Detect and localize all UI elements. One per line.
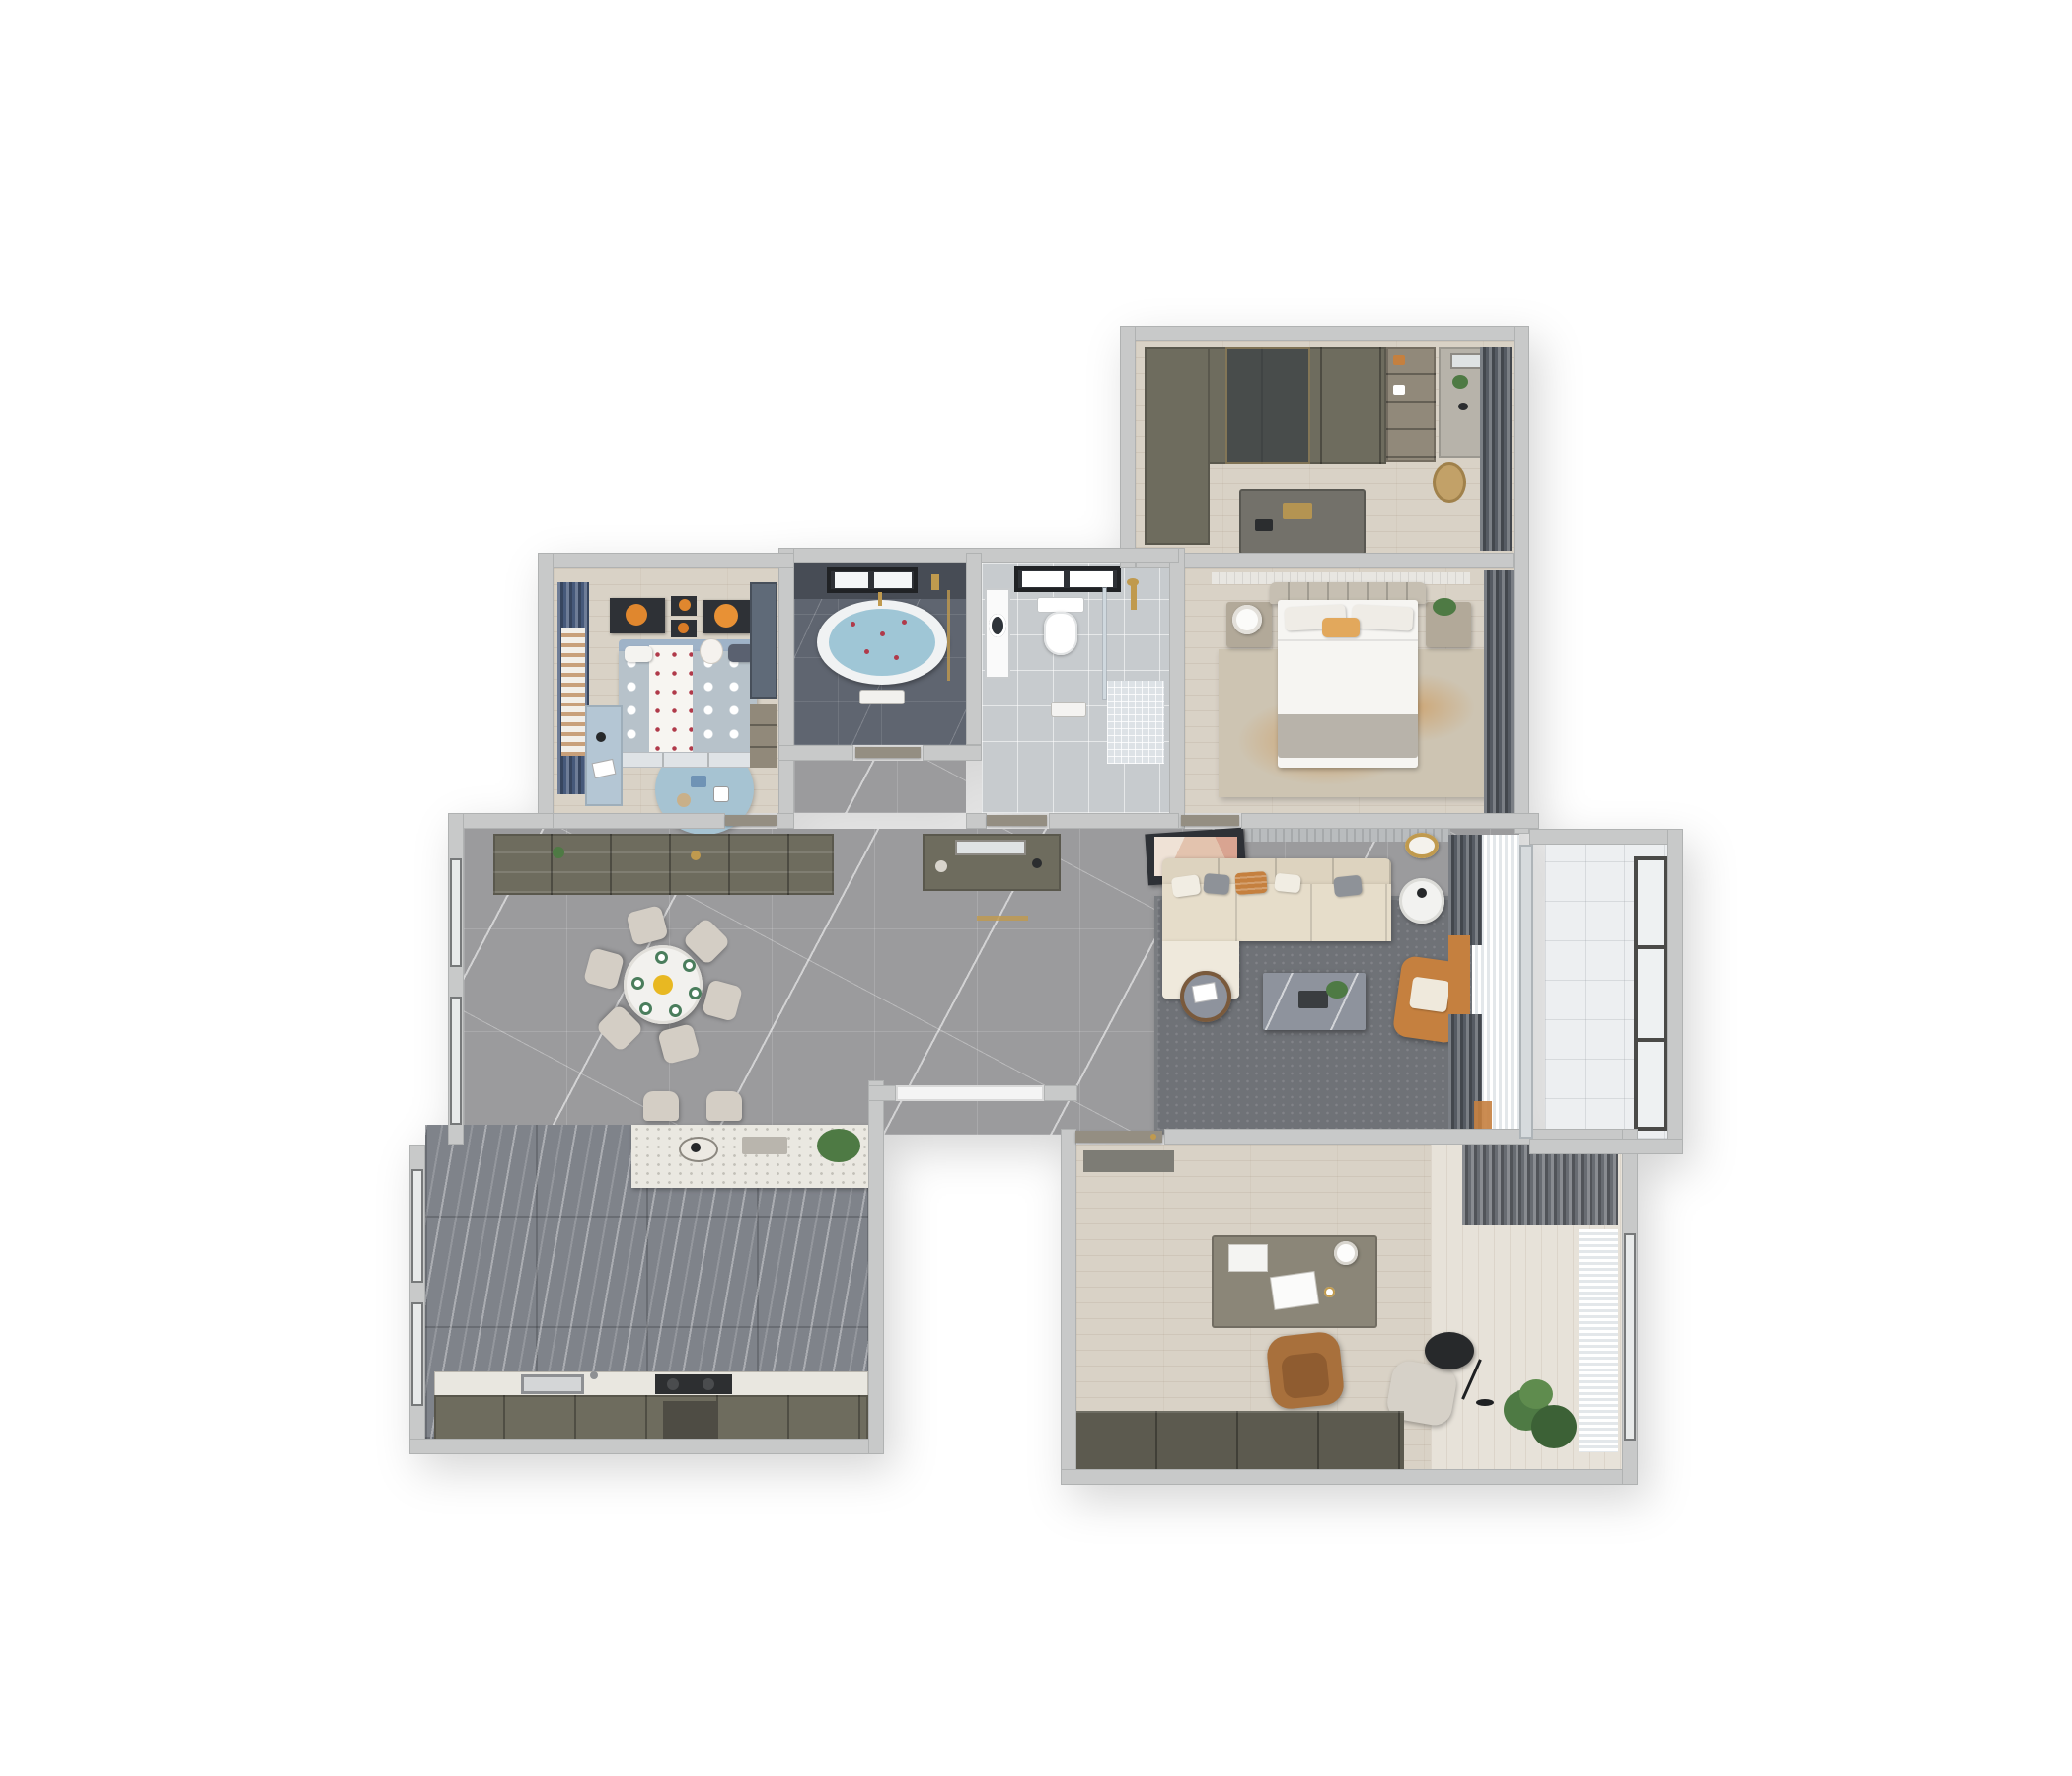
wall-hall-top-seg2 (1049, 813, 1179, 829)
kids-bed-runner (649, 645, 693, 758)
wall-balcony-right (1667, 829, 1683, 1154)
wall-study-left (1061, 1129, 1076, 1485)
desk-cup (1324, 1287, 1335, 1297)
shelf-bag-white (1393, 385, 1405, 395)
coffee-table-tray (1298, 991, 1328, 1008)
kitchen-window-2 (411, 1302, 423, 1406)
wall-kids-bottom-right (777, 813, 794, 829)
dining-window-2 (450, 997, 462, 1125)
place-setting-1 (655, 951, 668, 964)
master-bath-door (855, 747, 921, 758)
arc-floor-lamp-head (1425, 1332, 1474, 1369)
desk-lamp (1334, 1241, 1358, 1265)
island-board (742, 1137, 787, 1154)
place-setting-3 (689, 987, 702, 999)
balcony-window-mullion-2 (1634, 1038, 1667, 1042)
wall-master-bath-bottom-left (778, 745, 853, 761)
cooktop-burner-2 (703, 1378, 714, 1390)
sofa-pillow-orange (1234, 871, 1267, 895)
kids-art-planet-3 (678, 623, 689, 633)
kitchen-countertop (434, 1371, 868, 1397)
gold-threshold (977, 916, 1028, 921)
study-low-cabinet (1076, 1411, 1404, 1469)
cooktop-burner-1 (667, 1378, 679, 1390)
rattan-basket (1433, 462, 1466, 503)
laptop (1271, 1272, 1318, 1309)
master-bath-glass-rail (947, 590, 950, 681)
wall-entry-left (868, 1085, 896, 1101)
wall-bath-divider (966, 553, 982, 745)
wall-balcony-bottom (1529, 1139, 1683, 1154)
master-bath-window-pane-1 (835, 572, 868, 588)
floor-plan-stage (0, 0, 2072, 1776)
wall-entry-right (1044, 1085, 1077, 1101)
ceiling-lamp (1405, 833, 1439, 858)
desk-papers (1229, 1245, 1267, 1271)
entry-decor-vase (935, 860, 947, 872)
wall-study-bottom (1061, 1469, 1638, 1485)
kitchen-sink (521, 1374, 584, 1394)
kitchen-base-cabinets (434, 1395, 868, 1441)
kids-open-shelves (750, 704, 777, 768)
balcony-window-mullion-1 (1634, 945, 1667, 949)
flower-centerpiece (653, 975, 673, 995)
island-gold-tray (1283, 503, 1312, 519)
bar-stool-2 (706, 1091, 742, 1121)
kids-room-door (725, 815, 777, 826)
pillow-orange-accent (1322, 618, 1360, 637)
study-door (1075, 1131, 1162, 1143)
glass-front-wardrobe (1225, 347, 1310, 464)
kids-desk-lamp (596, 732, 606, 742)
shower-glass-partition (1103, 588, 1106, 699)
kids-pillow-white (625, 646, 652, 662)
kids-wardrobe (750, 582, 777, 699)
study-sheer-curtain (1579, 1229, 1618, 1452)
living-curtain-top (1448, 835, 1482, 945)
place-setting-6 (631, 977, 644, 990)
nightstand-plant (1433, 598, 1456, 616)
kitchen-faucet (590, 1371, 598, 1379)
vanity-plant (1452, 375, 1468, 389)
wall-hall-top-seg1 (966, 813, 987, 829)
kids-art-planet-4 (714, 604, 738, 628)
living-balcony-glass-partition (1519, 845, 1533, 1139)
kids-desk-cabinet (585, 705, 623, 806)
arc-floor-lamp-base (1476, 1399, 1494, 1406)
sofa-pillow-white-1 (1171, 874, 1202, 898)
study-plant-leaf-3 (1519, 1379, 1553, 1409)
study-plant-leaf-2 (1531, 1405, 1577, 1448)
gold-shower-column (1131, 584, 1137, 610)
kids-toy-bear (677, 793, 691, 807)
bathtub-water (829, 609, 935, 676)
wall-kids-bottom-left (538, 813, 725, 829)
rose-petal-2 (880, 631, 885, 636)
vanity-stones (1458, 403, 1468, 410)
duvet-fold-line (1278, 639, 1418, 641)
towel-tray (860, 691, 904, 703)
island-watch-box (1255, 519, 1273, 531)
study-door-mat (1083, 1150, 1174, 1172)
kids-footboard-drawers (619, 752, 757, 768)
wall-living-top (1241, 813, 1539, 829)
bar-stool-1 (643, 1091, 679, 1121)
bedside-lamp (1232, 605, 1262, 634)
shower-bath-window-pane-1 (1022, 571, 1064, 587)
bedroom-curtain (1484, 570, 1516, 815)
shelf-bag-orange (1393, 355, 1405, 365)
entry-mirror (955, 840, 1026, 855)
island-plant (817, 1129, 860, 1162)
office-chair-seat (1281, 1352, 1330, 1400)
wardrobe-left-column (1145, 347, 1210, 545)
bed-foot-blanket (1278, 714, 1418, 758)
sofa-pillow-gray-1 (1203, 873, 1230, 895)
wall-kids-top (538, 553, 794, 568)
cabinet-plant (553, 847, 564, 858)
toilet-bowl (1044, 612, 1077, 655)
kids-art-planet-1 (626, 604, 647, 626)
master-bath-shower-fixture (931, 574, 939, 590)
tub-faucet (878, 592, 882, 606)
shower-bath-door (987, 815, 1047, 826)
wall-dressing-bedroom-divider (1136, 553, 1514, 568)
kids-toy-book (714, 787, 728, 801)
rose-petal-3 (902, 620, 907, 625)
front-door-opening (896, 1085, 1044, 1101)
wall-dressing-left (1120, 326, 1136, 568)
master-bath-window-pane-2 (874, 572, 912, 588)
wall-dining-top-left (448, 813, 554, 829)
dining-display-cabinet (493, 834, 834, 895)
cabinet-open-slot (663, 1401, 718, 1439)
dining-window-1 (450, 858, 462, 967)
study-curtain (1462, 1145, 1618, 1225)
cabinet-decanter (691, 851, 701, 860)
coffee-table-plant (1326, 981, 1348, 999)
teddy-bear (701, 639, 722, 663)
toilet-tank (1038, 598, 1083, 612)
kids-art-planet-2 (679, 599, 691, 611)
rose-petal-5 (894, 655, 899, 660)
wall-kids-left (538, 553, 554, 829)
side-table-kettle (1417, 888, 1427, 898)
apartment-floor-plan (0, 0, 2072, 1776)
rose-petal-4 (864, 649, 869, 654)
kitchen-window-1 (411, 1169, 423, 1283)
wall-kitchen-right (868, 1080, 884, 1454)
balcony-window (1634, 856, 1667, 1131)
island-teapot (691, 1143, 701, 1152)
wall-bedroom-left (1169, 548, 1185, 829)
kids-toy-block (691, 776, 706, 787)
slipper-tray (1052, 703, 1085, 716)
place-setting-4 (669, 1004, 682, 1017)
dressing-window-curtain (1480, 347, 1512, 551)
shower-bath-window-pane-2 (1070, 571, 1113, 587)
side-table-white (1399, 878, 1444, 924)
wall-kitchen-bottom (409, 1439, 884, 1454)
wall-kids-bath-shared (778, 548, 794, 829)
gold-shower-head (1127, 578, 1139, 586)
study-window (1624, 1233, 1636, 1441)
master-bedroom-door (1181, 815, 1239, 826)
armchair-cushion (1409, 977, 1450, 1013)
place-setting-2 (683, 959, 696, 972)
vanity-basin (989, 614, 1006, 637)
wall-master-bath-bottom-right (923, 745, 982, 761)
wall-balcony-top (1529, 829, 1683, 845)
sofa-pillow-white-2 (1274, 873, 1301, 894)
floor-bath-corridor (794, 761, 966, 813)
sofa-pillow-gray-2 (1333, 875, 1363, 898)
pillow-right (1351, 604, 1413, 630)
rose-petal-1 (851, 622, 855, 627)
wall-dressing-top (1120, 326, 1529, 341)
study-door-handle (1150, 1134, 1156, 1140)
entry-decor-dark (1032, 858, 1042, 868)
kids-roller-blind (561, 628, 585, 756)
living-curtain-orange-panel (1448, 935, 1470, 1018)
place-setting-5 (639, 1002, 652, 1015)
wall-right-outer-upper (1514, 326, 1529, 834)
shower-mosaic-floor (1107, 681, 1164, 764)
